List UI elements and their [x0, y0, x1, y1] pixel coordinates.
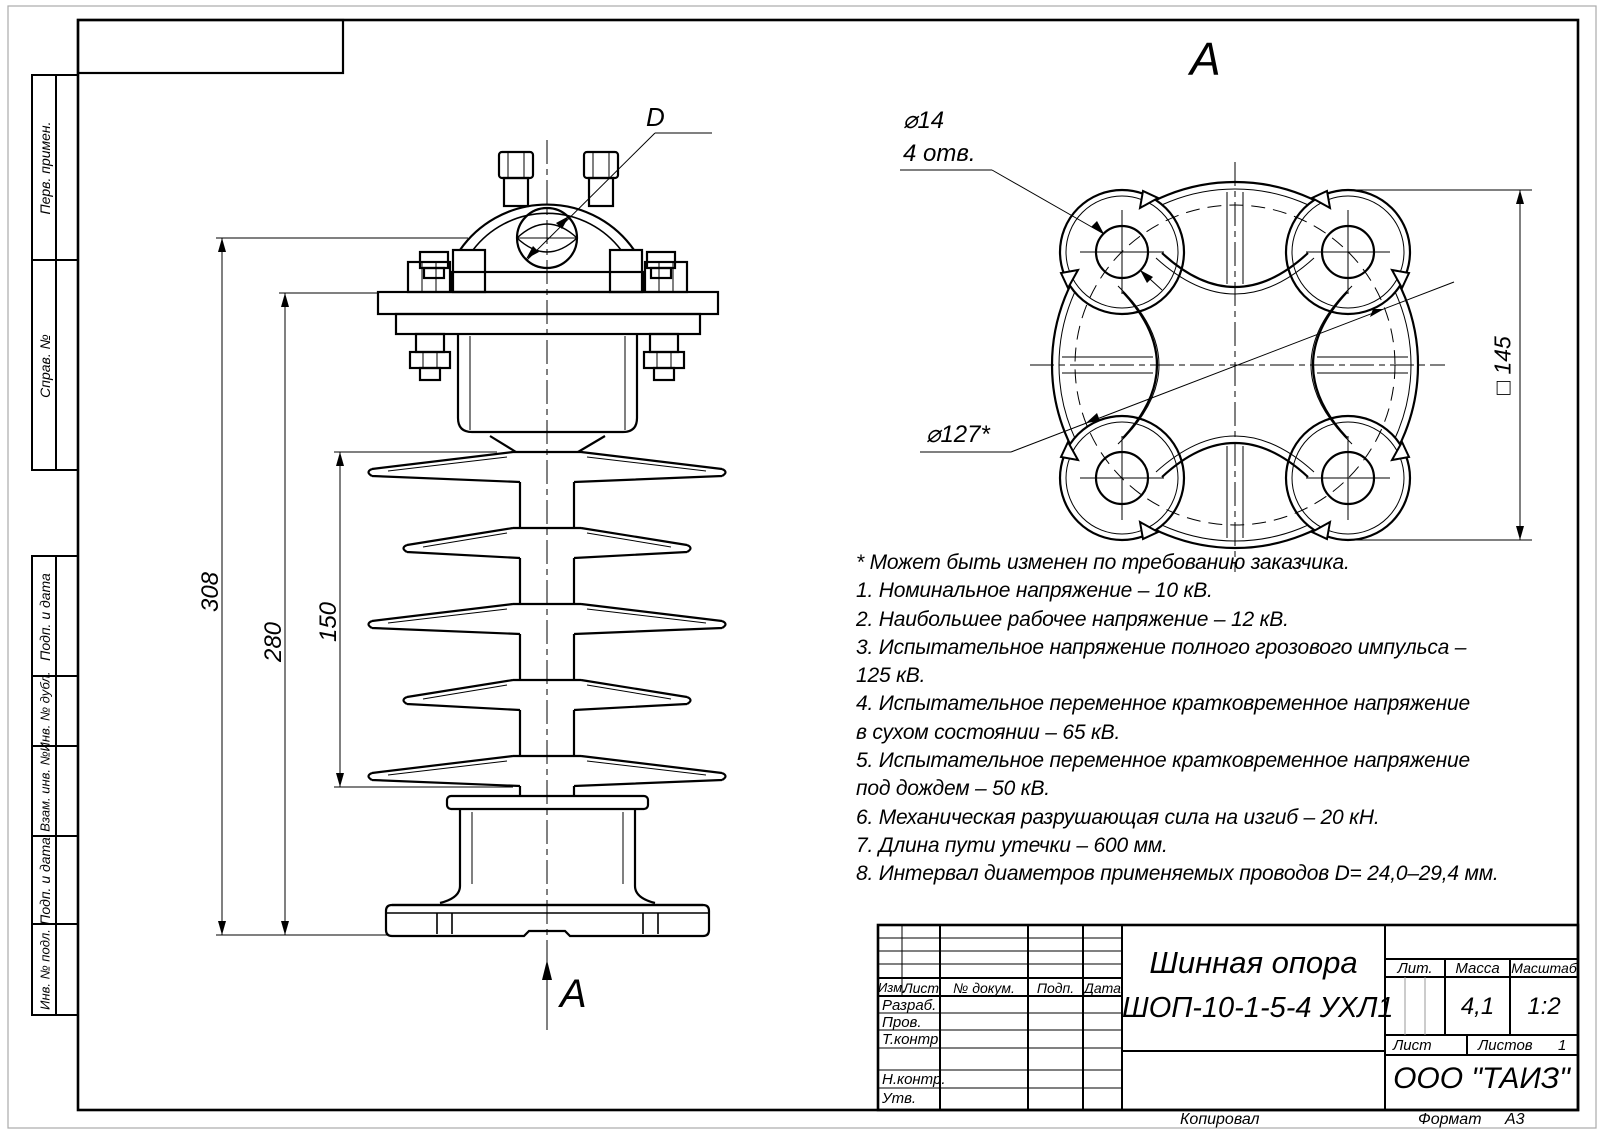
tb-doc-title-2: ШОП-10-1-5-4 УХЛ1 [1122, 992, 1385, 1025]
dim-hole-diameter: ⌀14 [903, 106, 944, 135]
tb-sheets-value: 1 [1558, 1037, 1566, 1054]
dim-308: 308 [197, 562, 225, 622]
bottom-format-label: Формат [1418, 1111, 1482, 1129]
tb-row-prov: Пров. [882, 1014, 922, 1031]
tb-company: ООО "ТАИЗ" [1385, 1062, 1578, 1096]
view-a-label: А [1190, 32, 1221, 86]
drawing-sheet: Перв. примен. Справ. № Подп. и дата Инв.… [0, 0, 1600, 1133]
dim-bolt-circle: ⌀127* [926, 420, 990, 449]
note-line: 6. Механическая разрушающая сила на изги… [856, 804, 1556, 832]
dim-conductor-d: D [646, 102, 665, 133]
tb-col-data: Дата [1083, 980, 1122, 996]
dim-280: 280 [260, 612, 288, 672]
note-line: 3. Испытательное напряжение полного гроз… [856, 634, 1556, 662]
tb-row-tkontr: Т.контр. [882, 1031, 943, 1048]
note-line: 8. Интервал диаметров применяемых провод… [856, 860, 1556, 888]
note-line: под дождем – 50 кВ. [856, 775, 1556, 803]
tb-sheets-label: Листов [1478, 1037, 1533, 1054]
tb-col-podp: Подп. [1028, 980, 1083, 996]
note-line: в сухом состоянии – 65 кВ. [856, 719, 1556, 747]
technical-notes: * Может быть изменен по требованию заказ… [856, 549, 1556, 889]
tb-col-list: Лист [902, 980, 940, 996]
dim-hole-count: 4 отв. [903, 140, 976, 168]
note-line: 7. Длина пути утечки – 600 мм. [856, 832, 1556, 860]
tb-sheet-label: Лист [1393, 1037, 1432, 1054]
top-view [900, 162, 1532, 572]
tb-scale-label: Масштаб [1510, 960, 1578, 976]
dim-square-145: □ 145 [1490, 321, 1517, 411]
note-line: 2. Наибольшее рабочее напряжение – 12 кВ… [856, 606, 1556, 634]
tb-mass-value: 4,1 [1445, 993, 1510, 1021]
note-line: 5. Испытательное переменное кратковремен… [856, 747, 1556, 775]
tb-scale-value: 1:2 [1510, 993, 1578, 1021]
tb-row-razrab: Разраб. [882, 997, 936, 1014]
tb-doc-title-1: Шинная опора [1122, 945, 1385, 981]
tb-col-izm: Изм. [878, 980, 902, 995]
front-dimensions [216, 133, 712, 935]
dim-150: 150 [315, 592, 343, 652]
note-line: * Может быть изменен по требованию заказ… [856, 549, 1556, 577]
front-view [216, 133, 726, 1030]
top-dimensions [900, 170, 1532, 540]
tb-lit-label: Лит. [1385, 960, 1445, 977]
margin-label-perv-primen: Перв. примен. [37, 108, 53, 228]
margin-label-sprav-n: Справ. № [37, 306, 53, 426]
note-line: 125 кВ. [856, 662, 1556, 690]
tb-mass-label: Масса [1445, 960, 1510, 977]
tb-row-utv: Утв. [882, 1090, 916, 1107]
tb-col-dokum: № докум. [940, 980, 1028, 996]
note-line: 4. Испытательное переменное кратковремен… [856, 690, 1556, 718]
margin-label-inv-podl: Инв. № подл. [38, 910, 53, 1030]
note-line: 1. Номинальное напряжение – 10 кВ. [856, 577, 1556, 605]
bottom-copied-label: Копировал [1180, 1111, 1260, 1129]
bottom-format-value: А3 [1505, 1111, 1525, 1129]
tb-row-nkontr: Н.контр. [882, 1071, 946, 1088]
section-arrow-label: А [560, 972, 587, 1017]
